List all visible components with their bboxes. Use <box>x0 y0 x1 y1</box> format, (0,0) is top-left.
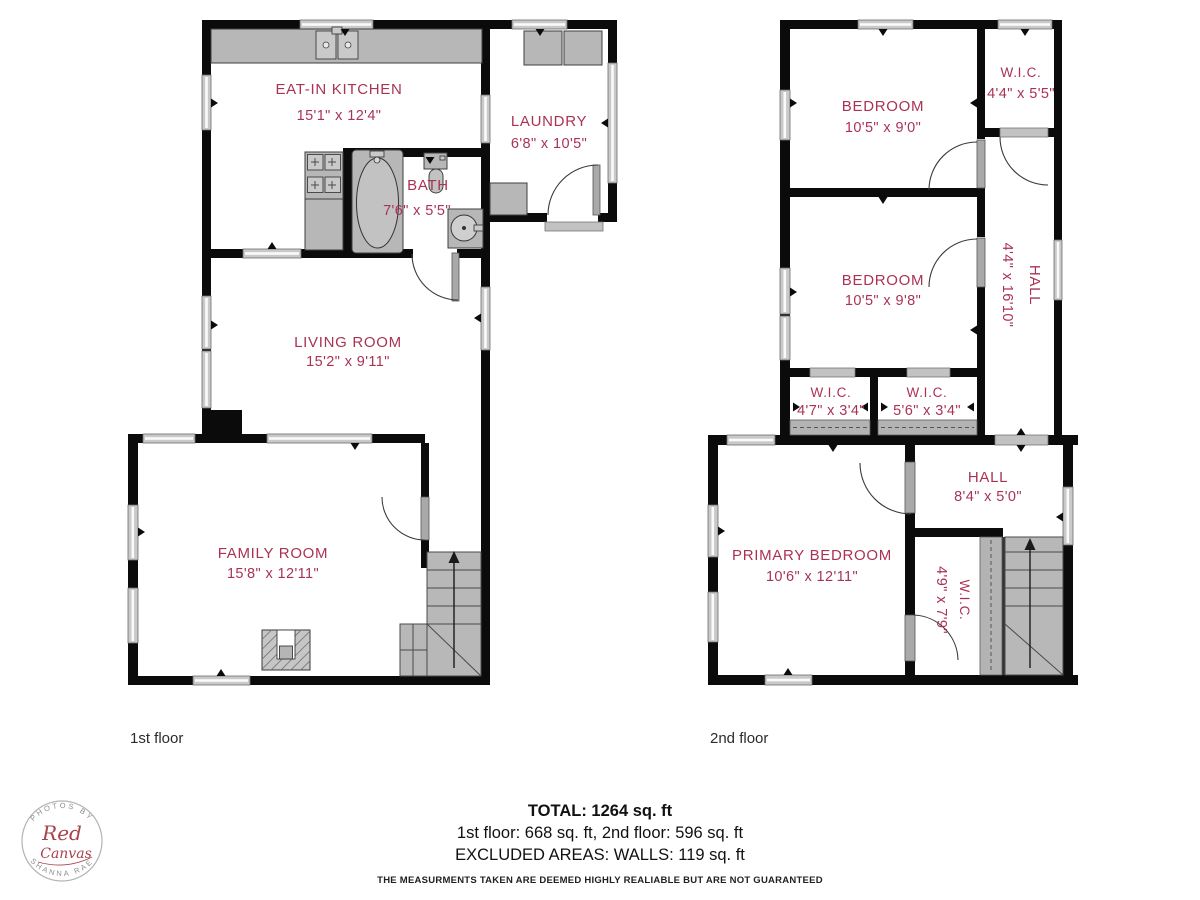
tub-faucet <box>370 151 384 157</box>
room-label-bath: BATH <box>407 177 449 194</box>
second-floor-caption: 2nd floor <box>710 730 768 747</box>
room-dims-eat-in-kitchen: 15'1" x 12'4" <box>297 108 382 124</box>
window <box>780 268 790 314</box>
room-label-bedroom-1: BEDROOM <box>842 98 924 115</box>
cased-opening <box>243 249 301 258</box>
room-label-hall-lower: HALL <box>968 469 1008 486</box>
window <box>708 505 718 557</box>
excluded-areas-text: EXCLUDED AREAS: WALLS: 119 sq. ft <box>0 844 1200 866</box>
window <box>858 20 913 29</box>
door <box>382 497 429 540</box>
faucet <box>332 27 342 34</box>
laundry-stoop <box>545 222 603 231</box>
room-label-eat-in-kitchen: EAT-IN KITCHEN <box>275 81 402 98</box>
stairs-down <box>1005 537 1063 675</box>
window <box>998 20 1052 29</box>
total-area-text: TOTAL: 1264 sq. ft <box>0 800 1200 822</box>
room-dims-living-room: 15'2" x 9'11" <box>306 354 390 370</box>
room-dims-family-room: 15'8" x 12'11" <box>227 566 319 582</box>
room-dims-wic-primary: 4'9" x 7'9" <box>933 566 949 634</box>
door <box>929 140 985 190</box>
window <box>481 95 490 143</box>
room-dims-bedroom-1: 10'5" x 9'0" <box>845 120 921 136</box>
window <box>780 90 790 140</box>
window <box>128 588 138 643</box>
floorplan-drawing: EAT-IN KITCHEN 15'1" x 12'4" LAUNDRY 6'8… <box>0 0 1200 900</box>
door <box>905 615 958 661</box>
sink-faucet <box>474 225 483 231</box>
room-label-wic-left: W.I.C. <box>811 385 852 400</box>
room-dims-hall-upper: 4'4" x 16'10" <box>999 243 1015 328</box>
room-dims-primary-bedroom: 10'6" x 12'11" <box>766 569 858 585</box>
fireplace <box>262 630 310 670</box>
room-label-wic-primary: W.I.C. <box>957 580 972 621</box>
room-label-wic-right: W.I.C. <box>907 385 948 400</box>
room-dims-bath: 7'6" x 5'5" <box>383 203 451 219</box>
window <box>143 434 195 443</box>
doorway-opening <box>1000 128 1048 137</box>
room-label-hall-upper: HALL <box>1026 265 1043 305</box>
door <box>1000 137 1048 185</box>
window <box>608 63 617 183</box>
window <box>1063 487 1073 545</box>
window <box>708 592 718 642</box>
doorway-opening <box>907 368 950 377</box>
dryer <box>564 31 602 65</box>
room-dims-wic-top: 4'4" x 5'5" <box>987 86 1055 102</box>
door <box>929 238 985 287</box>
room-label-family-room: FAMILY ROOM <box>218 545 329 562</box>
laundry-cabinet <box>490 183 527 215</box>
room-label-laundry: LAUNDRY <box>511 113 587 130</box>
stairs-up <box>400 551 481 676</box>
room-dims-wic-left: 4'7" x 3'4" <box>797 403 865 419</box>
window <box>1054 240 1062 300</box>
hall-opening <box>995 435 1048 445</box>
room-dims-hall-lower: 8'4" x 5'0" <box>954 489 1022 505</box>
room-label-primary-bedroom: PRIMARY BEDROOM <box>732 547 892 564</box>
window <box>780 316 790 360</box>
bathroom-sink <box>448 209 483 248</box>
window <box>481 287 490 350</box>
cased-opening <box>267 434 372 443</box>
window <box>512 20 567 29</box>
doorway-opening <box>810 368 855 377</box>
door <box>548 165 600 215</box>
window <box>202 351 211 408</box>
room-dims-laundry: 6'8" x 10'5" <box>511 136 587 152</box>
room-label-bedroom-2: BEDROOM <box>842 272 924 289</box>
washer <box>524 31 562 65</box>
area-summary: TOTAL: 1264 sq. ft 1st floor: 668 sq. ft… <box>0 800 1200 886</box>
first-floor-caption: 1st floor <box>130 730 183 747</box>
floor-areas-text: 1st floor: 668 sq. ft, 2nd floor: 596 sq… <box>0 822 1200 844</box>
first-floor-plan: EAT-IN KITCHEN 15'1" x 12'4" LAUNDRY 6'8… <box>128 20 617 685</box>
window <box>765 675 812 685</box>
floorplan-page: EAT-IN KITCHEN 15'1" x 12'4" LAUNDRY 6'8… <box>0 0 1200 900</box>
door <box>860 462 915 514</box>
room-dims-wic-right: 5'6" x 3'4" <box>893 403 961 419</box>
window <box>202 296 211 349</box>
window <box>202 75 211 130</box>
kitchen-cabinet <box>305 199 343 250</box>
room-dims-bedroom-2: 10'5" x 9'8" <box>845 293 921 309</box>
door <box>412 253 459 301</box>
second-floor-plan: BEDROOM 10'5" x 9'0" W.I.C. 4'4" x 5'5" … <box>708 20 1078 685</box>
stove <box>305 152 343 250</box>
window <box>128 505 138 560</box>
window <box>193 676 250 685</box>
room-label-wic-top: W.I.C. <box>1001 65 1042 80</box>
bathtub <box>352 150 403 253</box>
disclaimer-text: THE MEASURMENTS TAKEN ARE DEEMED HIGHLY … <box>0 875 1200 886</box>
room-label-living-room: LIVING ROOM <box>294 334 402 351</box>
window <box>727 435 775 445</box>
